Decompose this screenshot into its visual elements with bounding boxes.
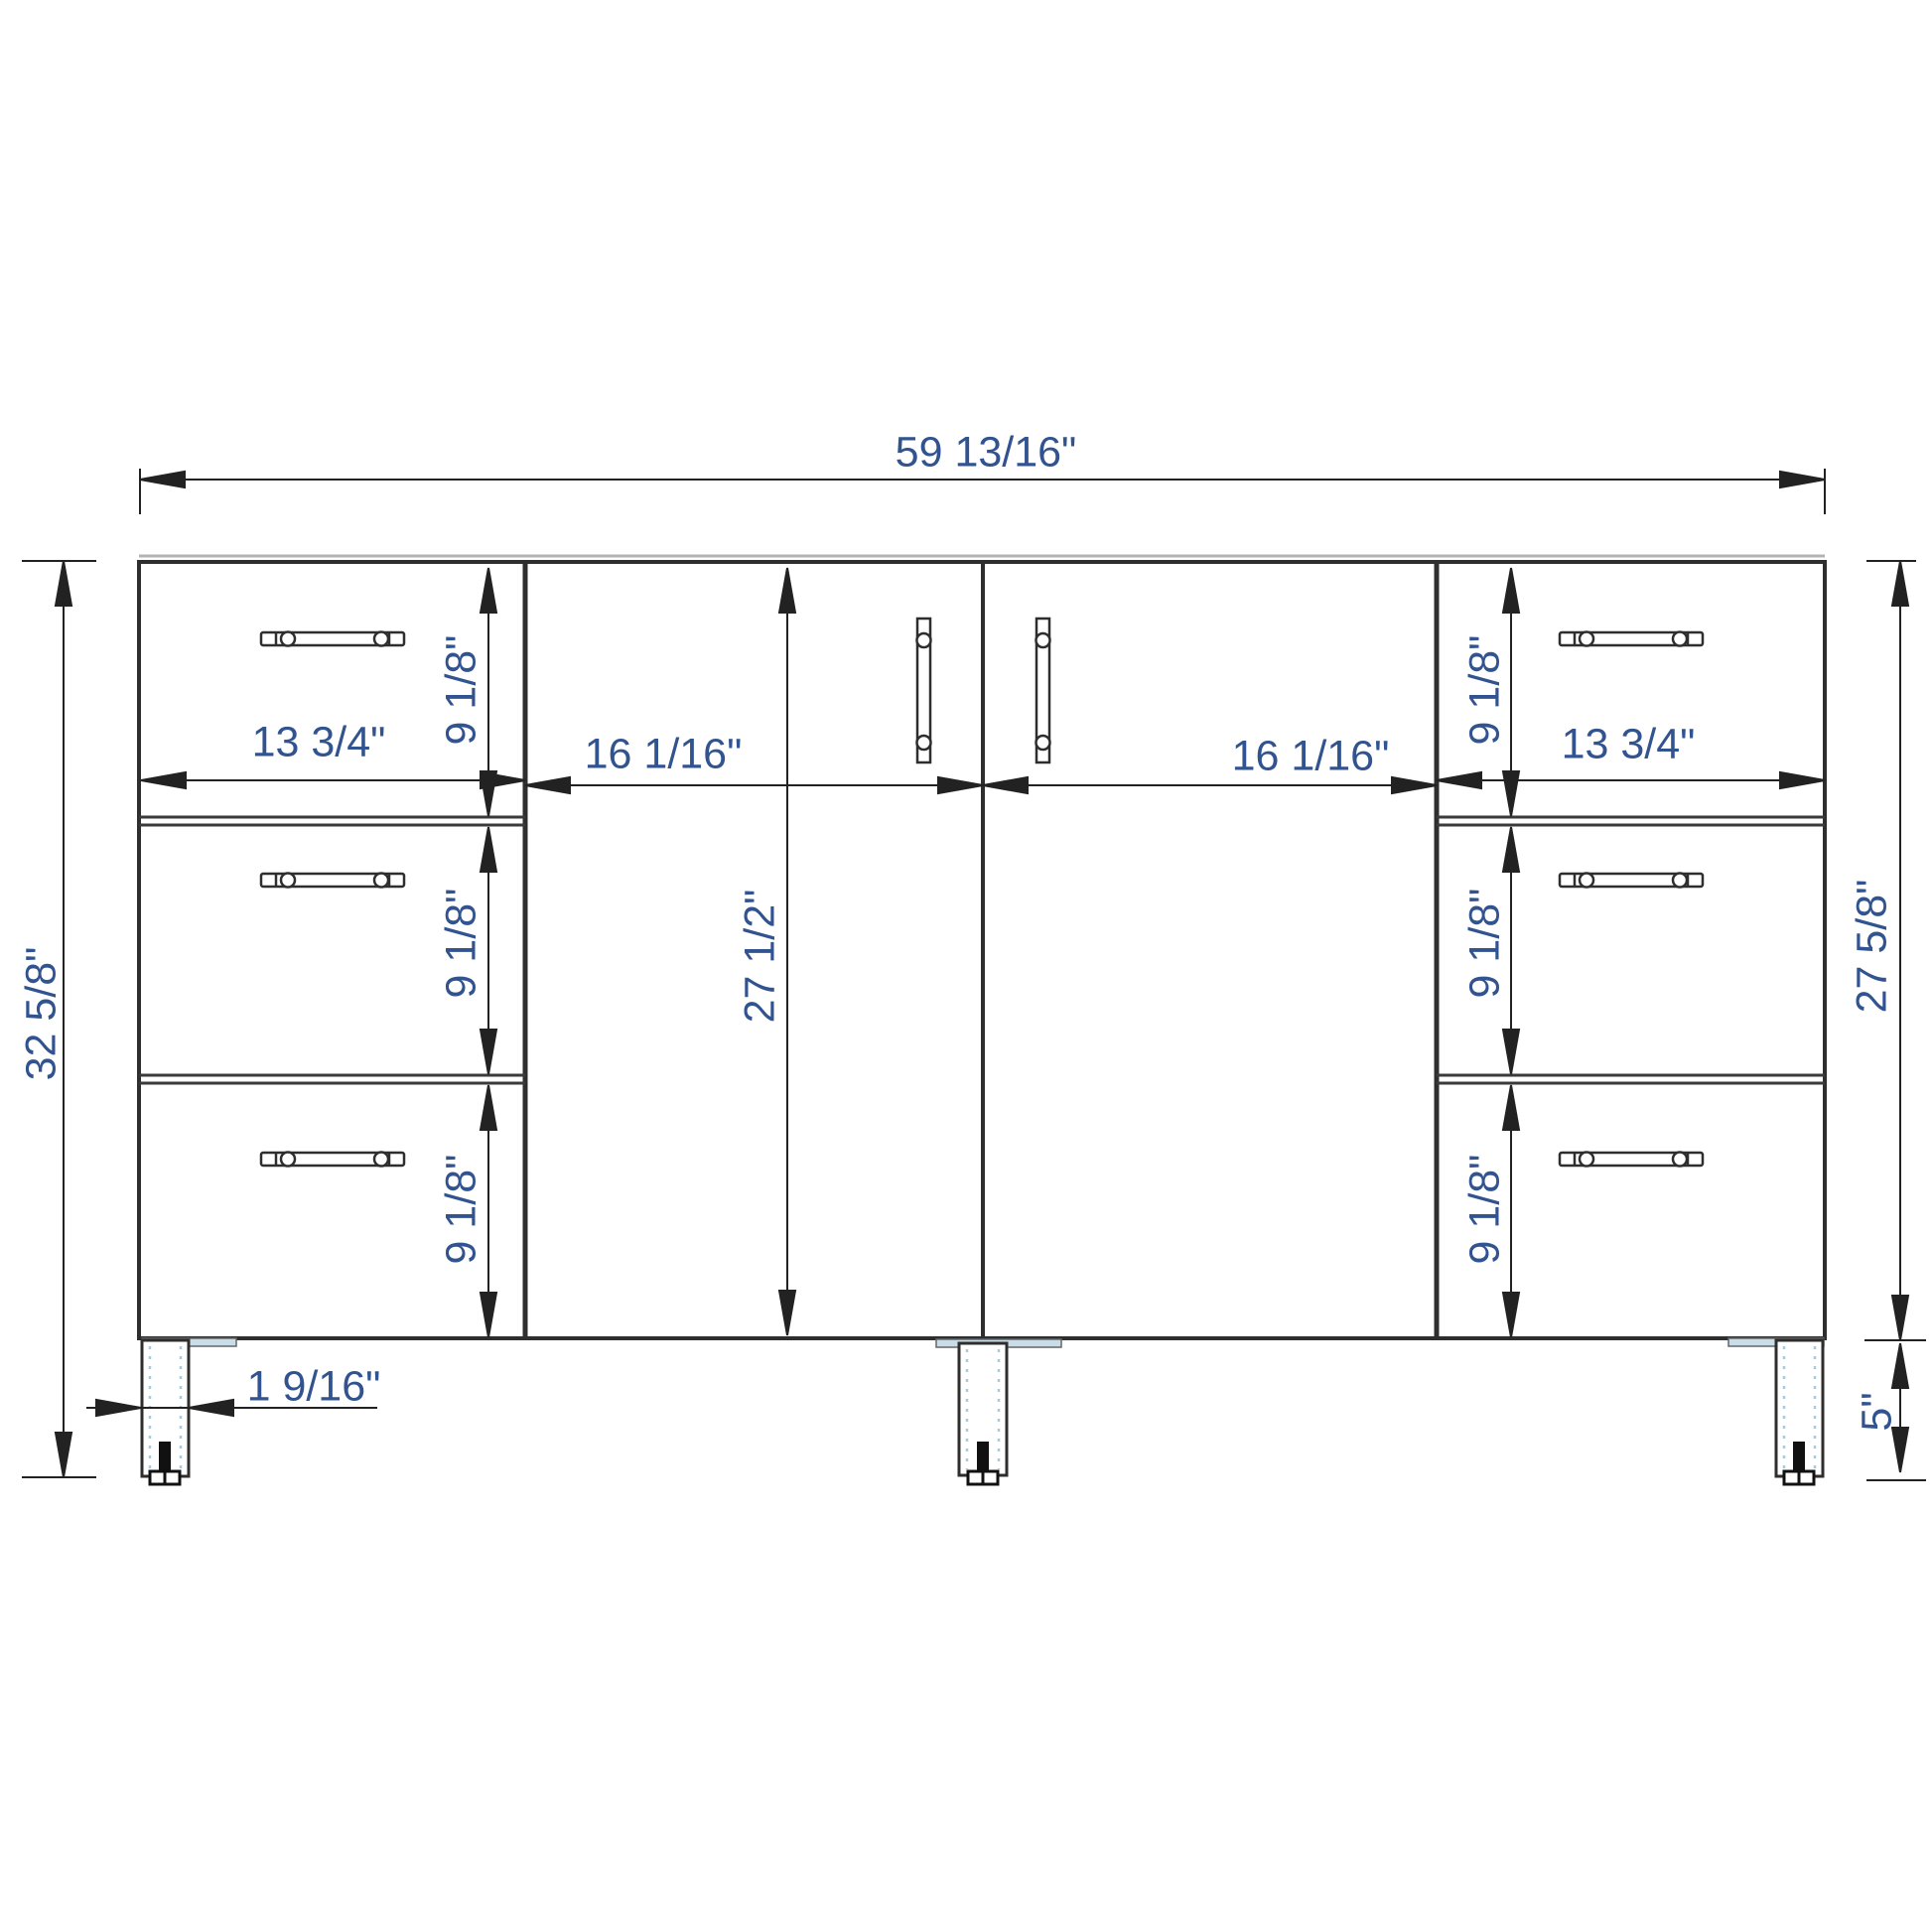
dim-left-door-width: [525, 777, 983, 793]
dim-label-overall-width: 59 13/16": [896, 432, 1077, 475]
left-drawer1-handle: [261, 632, 404, 646]
section-partitions: [525, 562, 1437, 1338]
right-leg: [1728, 1338, 1824, 1484]
right-leg-bolt: [1793, 1442, 1805, 1471]
left-drawer2-handle: [261, 874, 404, 888]
dim-label-leg-offset: 1 9/16": [247, 1366, 381, 1409]
dim-label-left-drawer2-height: 9 1/8": [441, 889, 483, 999]
right-drawer1-handle: [1560, 632, 1703, 646]
right-door-handle: [1036, 619, 1050, 762]
dim-label-right-drawer2-height: 9 1/8": [1464, 889, 1507, 999]
dim-label-left-door-width: 16 1/16": [585, 734, 743, 776]
dim-label-right-door-width: 16 1/16": [1232, 736, 1390, 778]
right-drawer3-handle: [1560, 1153, 1703, 1167]
center-leg-bolt: [977, 1442, 989, 1471]
dim-label-leg-height: 5": [1857, 1392, 1899, 1431]
right-leg-foot: [1784, 1471, 1814, 1484]
left-door-handle: [917, 605, 931, 762]
cabinet-linework: [0, 0, 1932, 1932]
dim-right-drawer-width: [1437, 772, 1825, 788]
dim-left-drawer-width: [141, 772, 525, 788]
dim-label-door-height: 27 1/2": [740, 890, 782, 1024]
dim-label-left-drawer1-height: 9 1/8": [441, 635, 483, 746]
dim-label-cabinet-body-height: 27 5/8": [1852, 880, 1894, 1014]
right-drawer2-handle: [1560, 874, 1703, 888]
left-drawer3-handle: [261, 1153, 404, 1167]
drawing-canvas: 59 13/16" 13 3/4" 16 1/16" 16 1/16" 13 3…: [0, 0, 1932, 1932]
dimension-lines: [22, 469, 1926, 1480]
left-leg-foot: [150, 1471, 180, 1484]
legs: [142, 1338, 1824, 1484]
center-leg: [936, 1339, 1061, 1484]
left-leg-bolt: [159, 1442, 171, 1471]
dim-label-right-drawer1-height: 9 1/8": [1464, 635, 1507, 746]
dim-label-right-drawer-width: 13 3/4": [1562, 724, 1696, 766]
dim-label-left-drawer-width: 13 3/4": [252, 722, 386, 764]
dim-label-right-drawer3-height: 9 1/8": [1464, 1155, 1507, 1265]
dim-label-left-drawer3-height: 9 1/8": [441, 1155, 483, 1265]
center-leg-foot: [968, 1471, 998, 1484]
dim-label-total-height: 32 5/8": [21, 947, 64, 1081]
